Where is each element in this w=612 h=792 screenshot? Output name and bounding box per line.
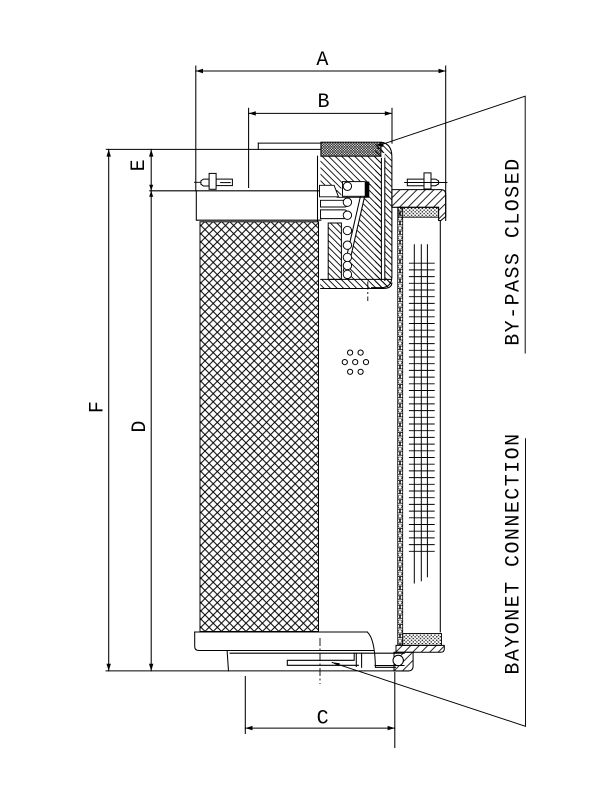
svg-text:A: A xyxy=(316,49,328,72)
svg-text:B: B xyxy=(318,91,330,114)
svg-text:D: D xyxy=(129,421,152,433)
svg-text:F: F xyxy=(86,401,109,413)
svg-text:BAYONET CONNECTION: BAYONET CONNECTION xyxy=(502,432,525,674)
svg-text:BY-PASS CLOSED: BY-PASS CLOSED xyxy=(502,157,525,345)
svg-text:E: E xyxy=(128,159,151,171)
svg-text:C: C xyxy=(317,708,329,731)
